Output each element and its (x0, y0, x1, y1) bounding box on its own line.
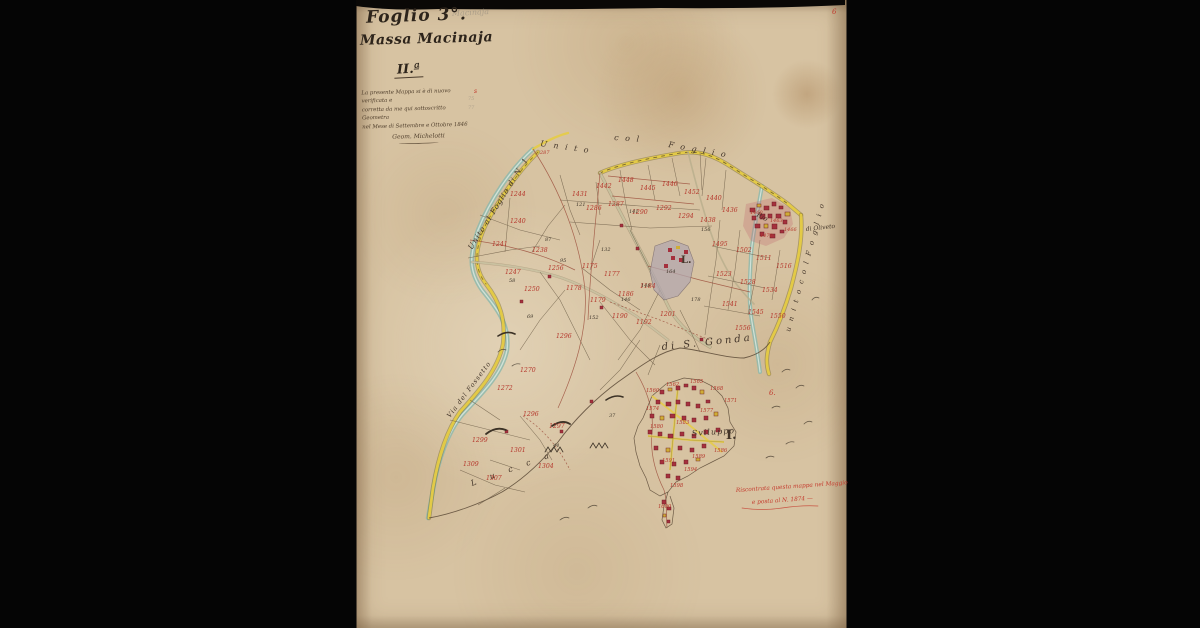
svg-text:1568: 1568 (710, 386, 724, 392)
surveyor-signature: Geom. Michelotti (362, 130, 474, 142)
svg-text:1586: 1586 (714, 448, 728, 454)
svg-text:1565: 1565 (690, 379, 703, 385)
svg-text:1294: 1294 (678, 213, 694, 220)
svg-text:1448: 1448 (618, 177, 634, 184)
svg-text:1594: 1594 (684, 467, 697, 473)
svg-text:95: 95 (560, 258, 566, 264)
svg-text:1442: 1442 (596, 183, 612, 190)
certification-note: La presente Mappa si è di nuovo verifica… (361, 87, 474, 146)
svg-text:1301: 1301 (510, 447, 526, 454)
svg-text:1201: 1201 (660, 311, 676, 318)
svg-text:1460: 1460 (750, 210, 764, 216)
svg-text:1466: 1466 (784, 227, 798, 233)
svg-text:1287: 1287 (608, 201, 624, 208)
svg-text:e posta al N. 1874 —: e posta al N. 1874 — (752, 496, 813, 506)
svg-text:1440: 1440 (706, 195, 722, 202)
svg-text:1240: 1240 (510, 218, 526, 225)
svg-text:287: 287 (539, 150, 550, 156)
sheet-number: Foglio 3°. (366, 4, 467, 28)
svg-text:44: 44 (552, 443, 559, 449)
svg-text:178: 178 (691, 297, 701, 303)
svg-text:F o g l i o: F o g l i o (667, 140, 729, 159)
svg-text:1580: 1580 (650, 424, 664, 430)
svg-text:1511: 1511 (756, 255, 772, 262)
svg-text:152: 152 (589, 315, 599, 321)
svg-text:1270: 1270 (520, 367, 536, 374)
svg-text:1516: 1516 (776, 263, 792, 270)
svg-text:132: 132 (601, 247, 611, 253)
svg-text:1175: 1175 (582, 263, 598, 270)
svg-text:1589: 1589 (692, 454, 706, 460)
svg-text:1452: 1452 (684, 189, 700, 196)
svg-text:69: 69 (527, 314, 534, 320)
svg-text:1571: 1571 (724, 398, 737, 404)
svg-text:1304: 1304 (538, 463, 554, 470)
svg-text:1307: 1307 (486, 475, 502, 482)
svg-text:1550: 1550 (770, 313, 786, 320)
svg-text:37: 37 (609, 413, 616, 419)
svg-text:1545: 1545 (748, 309, 764, 316)
svg-text:1445: 1445 (640, 185, 656, 192)
svg-text:1583: 1583 (676, 420, 690, 426)
svg-text:1247: 1247 (505, 269, 521, 276)
svg-text:1296: 1296 (523, 411, 539, 418)
svg-text:1179: 1179 (590, 297, 606, 304)
svg-text:Unito al Foglio di N. 1: Unito al Foglio di N. 1 (466, 156, 530, 251)
svg-text:1463: 1463 (770, 218, 783, 224)
svg-text:1238: 1238 (532, 247, 548, 254)
svg-text:1591: 1591 (662, 458, 675, 464)
svg-text:1297: 1297 (549, 423, 565, 430)
svg-text:1292: 1292 (656, 205, 672, 212)
svg-text:1309: 1309 (463, 461, 479, 468)
svg-text:58: 58 (509, 278, 515, 284)
svg-text:1502: 1502 (736, 247, 752, 254)
svg-text:1241: 1241 (492, 241, 508, 248)
svg-text:1574: 1574 (646, 406, 659, 412)
svg-text:164: 164 (666, 269, 676, 275)
svg-text:I.: I. (726, 428, 737, 443)
series-mark: II.ª (394, 61, 424, 78)
svg-text:1556: 1556 (735, 325, 751, 332)
svg-text:di S. Gonda: di S. Gonda (661, 332, 753, 352)
svg-text:1177: 1177 (604, 271, 620, 278)
svg-text:1431: 1431 (572, 191, 588, 198)
svg-text:1438: 1438 (700, 217, 716, 224)
svg-text:1272: 1272 (497, 385, 513, 392)
svg-text:1598: 1598 (670, 483, 684, 489)
svg-text:1244: 1244 (510, 191, 526, 198)
svg-text:1250: 1250 (524, 286, 540, 293)
svg-text:c o l: c o l (614, 133, 642, 144)
svg-text:1192: 1192 (636, 319, 652, 326)
svg-text:L.: L. (681, 255, 692, 266)
svg-text:148: 148 (641, 283, 651, 289)
svg-text:1299: 1299 (472, 437, 488, 444)
svg-text:1436: 1436 (722, 207, 738, 214)
svg-text:1296: 1296 (556, 333, 572, 340)
scan-background: U n i t oc o lF o g l i oUnito al Foglio… (0, 0, 1200, 628)
svg-text:1495: 1495 (712, 241, 728, 248)
svg-text:1600: 1600 (658, 504, 672, 510)
svg-text:1190: 1190 (612, 313, 628, 320)
map-drawing: U n i t oc o lF o g l i oUnito al Foglio… (0, 0, 1200, 628)
svg-text:121: 121 (576, 202, 586, 208)
svg-text:1523: 1523 (716, 271, 732, 278)
svg-text:1541: 1541 (722, 301, 738, 308)
svg-text:di Oliveto: di Oliveto (805, 223, 835, 233)
svg-text:1577: 1577 (700, 408, 714, 414)
svg-text:1256: 1256 (548, 265, 564, 272)
svg-text:1534: 1534 (762, 287, 778, 294)
svg-text:6: 6 (832, 8, 837, 16)
svg-text:87: 87 (545, 237, 552, 243)
svg-text:s: s (474, 88, 477, 95)
svg-text:146: 146 (621, 297, 631, 303)
svg-text:Riscontrata questa mappa nel M: Riscontrata questa mappa nel Maggio (735, 480, 849, 494)
svg-text:1470: 1470 (760, 233, 774, 239)
svg-text:1528: 1528 (740, 279, 756, 286)
svg-text:156: 156 (701, 227, 711, 233)
svg-text:1562: 1562 (666, 382, 679, 388)
svg-text:1286: 1286 (586, 205, 602, 212)
svg-text:141: 141 (629, 209, 639, 215)
svg-text:6.: 6. (769, 389, 776, 397)
svg-text:1178: 1178 (566, 285, 582, 292)
svg-text:1560: 1560 (646, 388, 660, 394)
svg-text:1446: 1446 (662, 181, 678, 188)
